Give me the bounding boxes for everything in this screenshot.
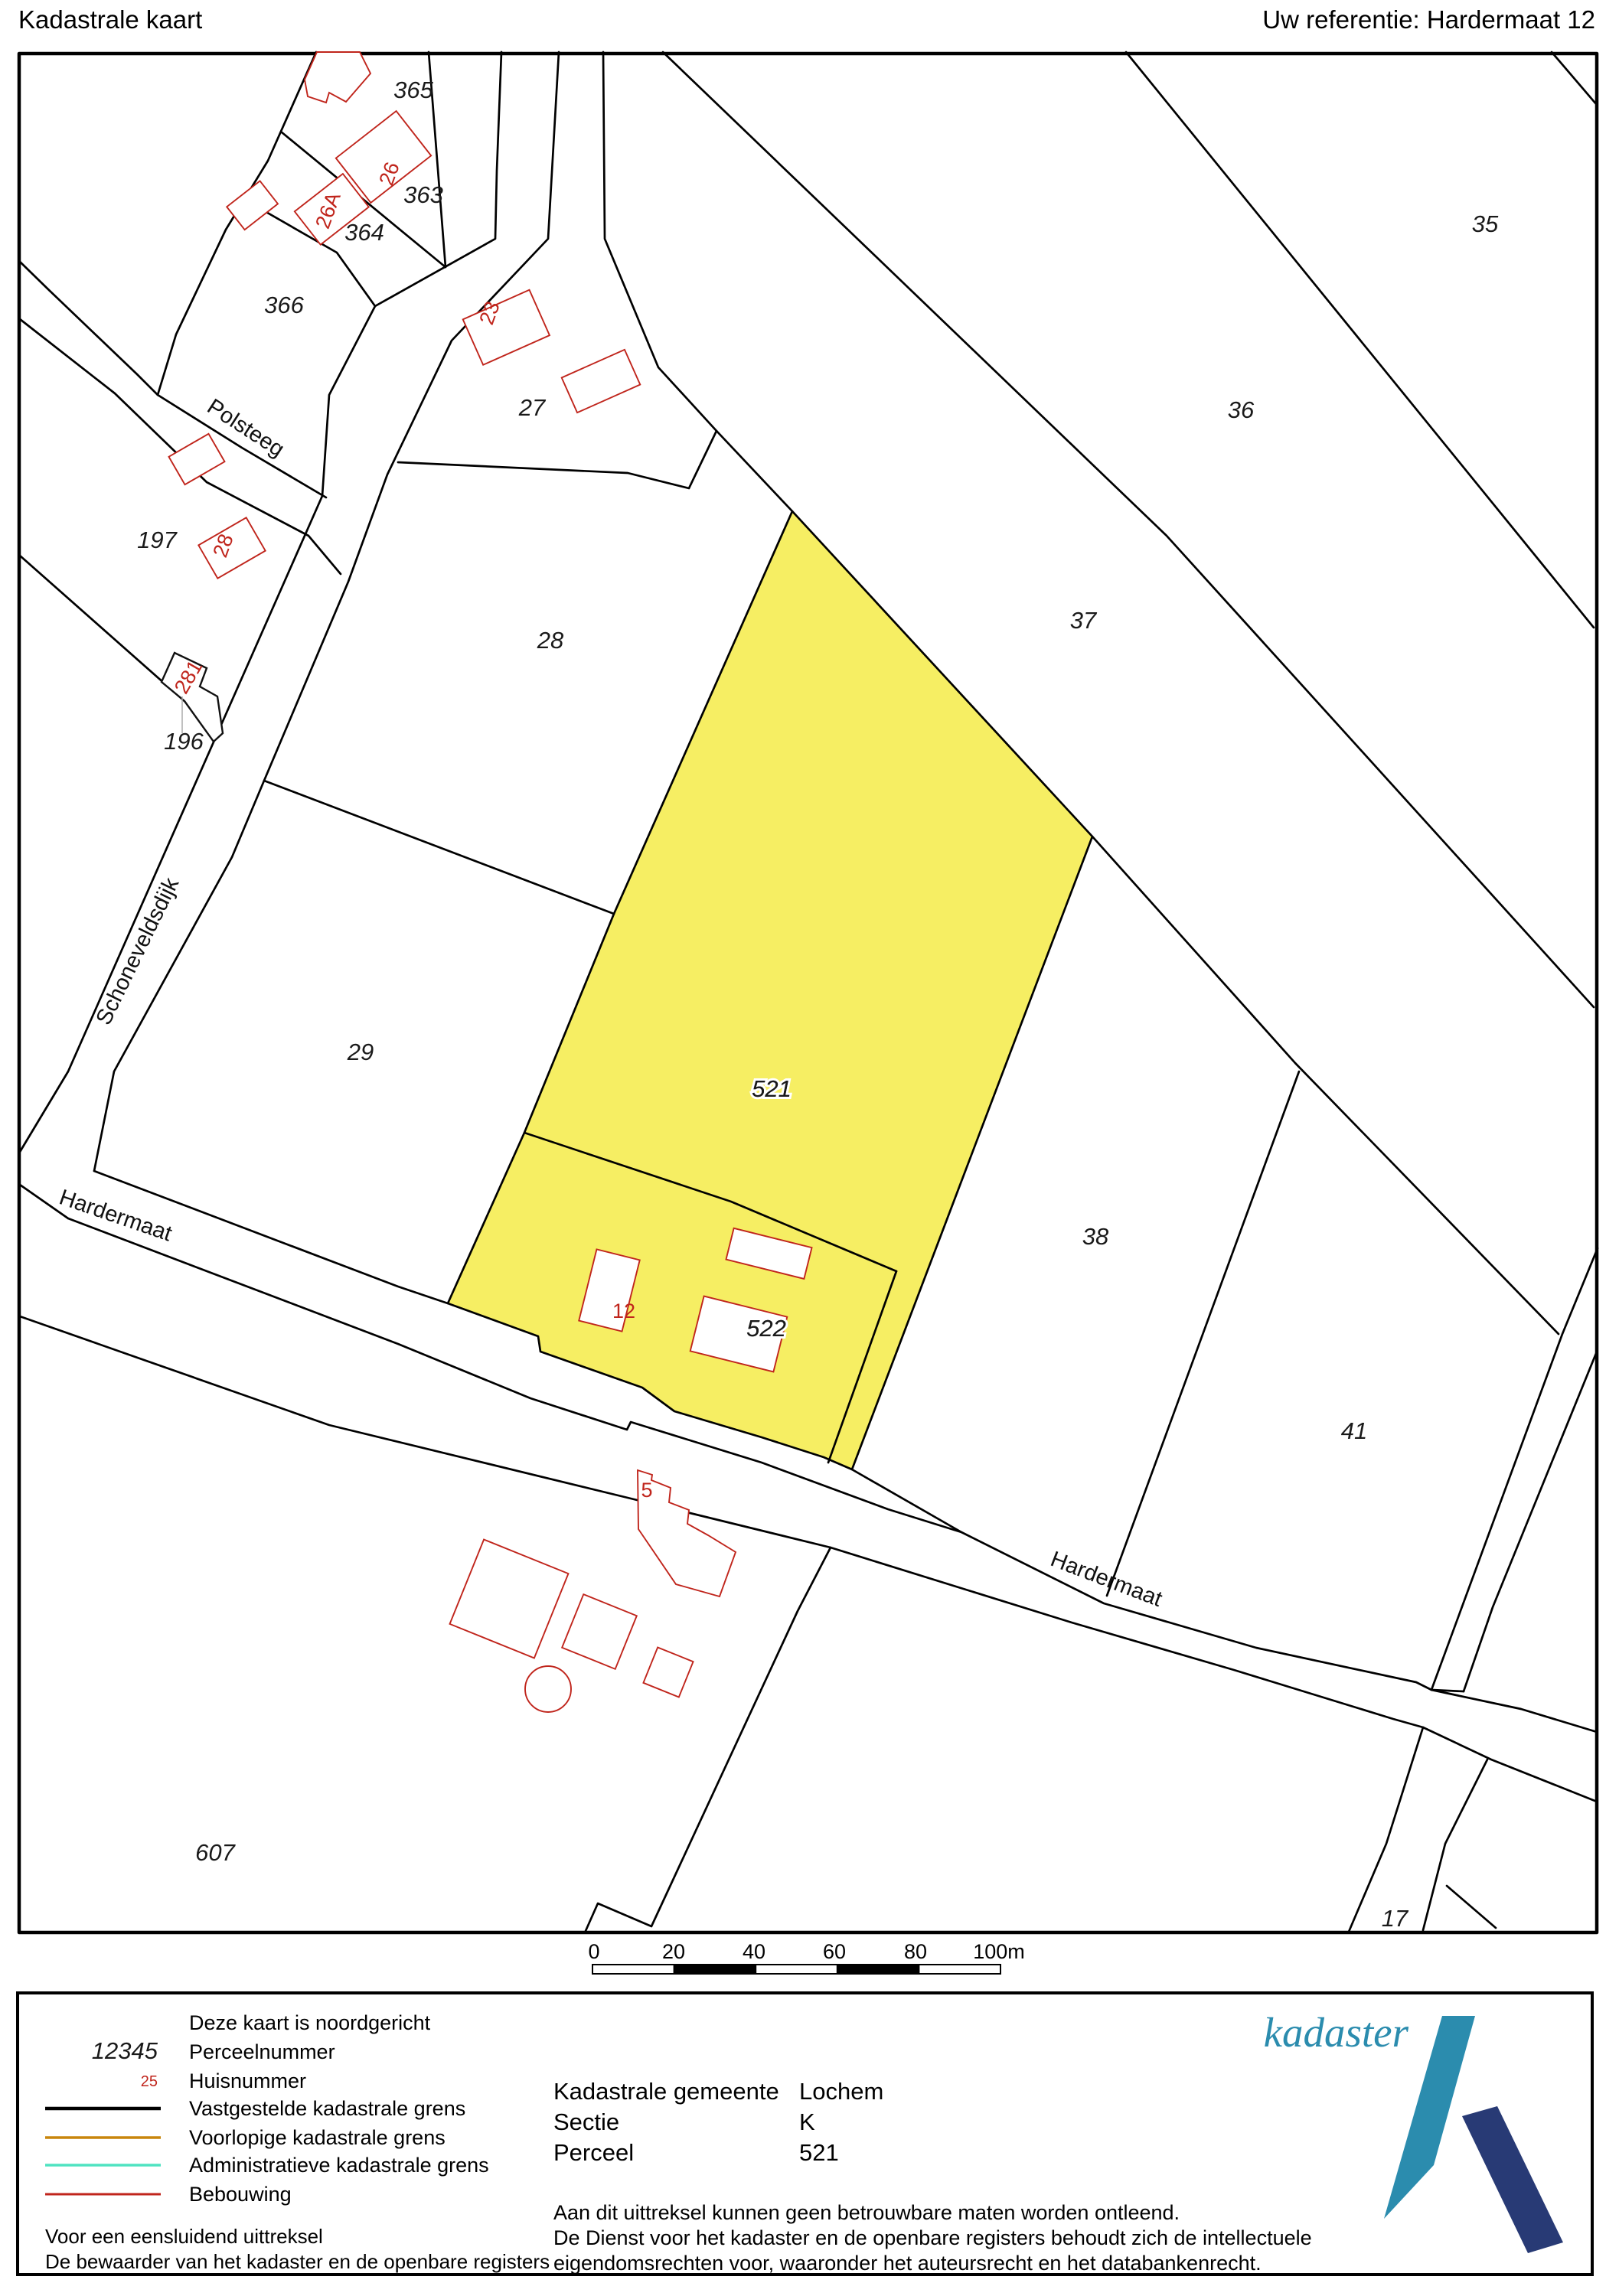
svg-text:Bebouwing: Bebouwing	[189, 2183, 292, 2206]
svg-text:196: 196	[164, 728, 204, 755]
svg-text:36: 36	[1228, 396, 1255, 423]
svg-text:366: 366	[264, 292, 304, 318]
svg-text:Kadastrale kaart: Kadastrale kaart	[18, 5, 202, 34]
svg-text:Vastgestelde kadastrale grens: Vastgestelde kadastrale grens	[189, 2097, 465, 2120]
svg-text:37: 37	[1070, 607, 1098, 634]
svg-text:25: 25	[141, 2073, 158, 2090]
svg-text:Aan dit uittreksel kunnen geen: Aan dit uittreksel kunnen geen betrouwba…	[553, 2201, 1180, 2224]
svg-text:Kadastrale gemeente: Kadastrale gemeente	[553, 2078, 779, 2105]
svg-text:eigendomsrechten voor, waarond: eigendomsrechten voor, waaronder het aut…	[553, 2252, 1262, 2275]
svg-text:Administratieve kadastrale gre: Administratieve kadastrale grens	[189, 2154, 489, 2177]
svg-text:363: 363	[403, 181, 443, 208]
svg-text:607: 607	[195, 1839, 236, 1866]
svg-text:197: 197	[137, 527, 178, 553]
svg-text:60: 60	[823, 1940, 846, 1963]
svg-text:80: 80	[904, 1940, 927, 1963]
svg-text:29: 29	[347, 1039, 374, 1065]
svg-text:Perceel: Perceel	[553, 2139, 634, 2166]
svg-text:0: 0	[588, 1940, 599, 1963]
svg-text:27: 27	[518, 394, 547, 421]
svg-text:De Dienst voor het kadaster en: De Dienst voor het kadaster en de openba…	[553, 2226, 1312, 2249]
svg-text:20: 20	[662, 1940, 685, 1963]
svg-text:Hardermaat: Hardermaat	[1047, 1547, 1165, 1612]
svg-text:Voorlopige kadastrale grens: Voorlopige kadastrale grens	[189, 2126, 446, 2149]
svg-text:Perceelnummer: Perceelnummer	[189, 2040, 335, 2063]
svg-text:17: 17	[1382, 1905, 1409, 1932]
svg-text:521: 521	[752, 1075, 792, 1102]
svg-text:Huisnummer: Huisnummer	[189, 2069, 306, 2092]
svg-text:K: K	[799, 2108, 815, 2135]
svg-text:Lochem: Lochem	[799, 2078, 883, 2105]
svg-text:28: 28	[537, 627, 564, 654]
svg-text:Schoneveldsdijk: Schoneveldsdijk	[92, 873, 184, 1029]
svg-text:Uw referentie: Hardermaat 12: Uw referentie: Hardermaat 12	[1262, 5, 1595, 34]
svg-text:100m: 100m	[973, 1940, 1025, 1963]
svg-text:521: 521	[799, 2139, 839, 2166]
svg-text:Deze kaart is noordgericht: Deze kaart is noordgericht	[189, 2011, 431, 2034]
svg-text:Voor een eensluidend uittrekse: Voor een eensluidend uittreksel	[45, 2225, 323, 2248]
svg-text:38: 38	[1082, 1223, 1109, 1250]
svg-text:41: 41	[1341, 1417, 1367, 1444]
svg-text:522: 522	[746, 1315, 786, 1342]
svg-text:kadaster: kadaster	[1264, 2009, 1409, 2056]
svg-text:40: 40	[743, 1940, 765, 1963]
svg-text:364: 364	[344, 219, 384, 246]
svg-text:12: 12	[612, 1300, 635, 1322]
svg-text:12345: 12345	[92, 2037, 158, 2064]
svg-text:Sectie: Sectie	[553, 2108, 619, 2135]
svg-text:5: 5	[641, 1479, 652, 1502]
svg-text:De bewaarder van het kadaster: De bewaarder van het kadaster en de open…	[45, 2250, 550, 2273]
svg-text:35: 35	[1472, 210, 1499, 237]
svg-text:365: 365	[393, 77, 433, 103]
